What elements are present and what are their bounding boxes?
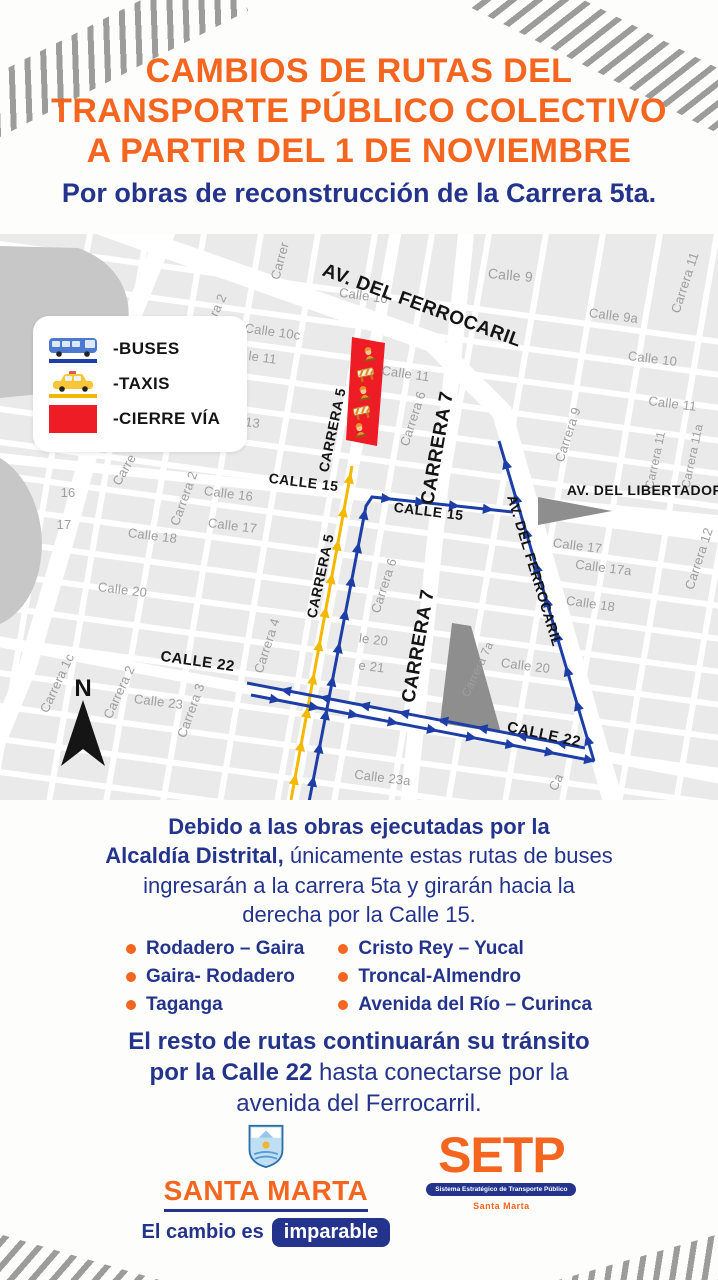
route-list-item: Avenida del Río – Curinca (338, 994, 592, 1016)
route-list-item: Taganga (126, 994, 304, 1016)
santa-marta-tagline: El cambio es imparable (142, 1218, 391, 1247)
route-list-item: Gaira- Rodadero (126, 966, 304, 988)
north-label: N (74, 675, 91, 702)
setp-wordmark: SETP (438, 1134, 565, 1177)
taxi-icon (47, 370, 99, 398)
route-list-item: Cristo Rey – Yucal (338, 938, 592, 960)
setp-full-name: Sistema Estratégico de Transporte Públic… (426, 1183, 576, 1196)
route-name: Taganga (146, 994, 223, 1016)
bullet-icon (338, 1000, 348, 1010)
bullet-icon (126, 944, 136, 954)
setp-city: Santa Marta (473, 1201, 530, 1211)
legend-label-buses: -BUSES (113, 339, 180, 359)
map-label: e 21 (358, 657, 386, 675)
santa-marta-logo: SANTA MARTA El cambio es imparable (142, 1124, 391, 1247)
legend-row-closure: -CIERRE VÍA (47, 405, 233, 433)
bullet-icon (338, 972, 348, 982)
page-title: CAMBIOS DE RUTAS DEL TRANSPORTE PÚBLICO … (0, 52, 718, 171)
routes-lists: Rodadero – Gaira Gaira- Rodadero Taganga… (0, 932, 718, 1022)
tagline-prefix: El cambio es (142, 1221, 264, 1244)
legend-label-taxis: -TAXIS (113, 374, 170, 394)
route-change-poster: CAMBIOS DE RUTAS DEL TRANSPORTE PÚBLICO … (0, 0, 718, 1280)
p1-line3: ingresarán a la carrera 5ta y girarán ha… (40, 871, 678, 900)
route-name: Avenida del Río – Curinca (358, 994, 592, 1016)
santa-marta-wordmark: SANTA MARTA (164, 1175, 369, 1212)
bullet-icon (126, 1000, 136, 1010)
route-list-item: Troncal-Almendro (338, 966, 592, 988)
p2-line2: por la Calle 22 hasta conectarse por la (40, 1057, 678, 1088)
route-name: Cristo Rey – Yucal (358, 938, 523, 960)
title-line-2: TRANSPORTE PÚBLICO COLECTIVO (0, 92, 718, 132)
title-line-3: A PARTIR DEL 1 DE NOVIEMBRE (0, 132, 718, 172)
legend-row-buses: -BUSES (47, 335, 233, 363)
route-name: Gaira- Rodadero (146, 966, 295, 988)
map-label: AV. DEL LIBERTADOR (567, 482, 718, 498)
p2-line1: El resto de rutas continuarán su tránsit… (40, 1026, 678, 1057)
routes-column-2: Cristo Rey – Yucal Troncal-Almendro Aven… (338, 932, 592, 1022)
paragraph-calle22: El resto de rutas continuarán su tránsit… (40, 1026, 678, 1120)
route-name: Troncal-Almendro (358, 966, 521, 988)
paragraph-works: Debido a las obras ejecutadas por la Alc… (40, 812, 678, 930)
map-section: Carrerra 2Calle 10Calle 9Carrera 11Calle… (0, 234, 718, 800)
setp-logo: SETP Sistema Estratégico de Transporte P… (426, 1134, 576, 1211)
footer-logos: SANTA MARTA El cambio es imparable SETP … (0, 1124, 718, 1247)
route-list-item: Rodadero – Gaira (126, 938, 304, 960)
map-legend: -BUSES -TAXIS (33, 316, 247, 452)
legend-label-closure: -CIERRE VÍA (113, 409, 220, 429)
p2-line3: avenida del Ferrocarril. (40, 1088, 678, 1119)
legend-row-taxis: -TAXIS (47, 370, 233, 398)
p1-line1: Debido a las obras ejecutadas por la (40, 812, 678, 841)
p1-line4: derecha por la Calle 15. (40, 900, 678, 929)
title-line-1: CAMBIOS DE RUTAS DEL (0, 52, 718, 92)
route-name: Rodadero – Gaira (146, 938, 304, 960)
santa-marta-crest-icon (247, 1124, 285, 1173)
tagline-highlight: imparable (272, 1218, 390, 1247)
bullet-icon (126, 972, 136, 982)
bullet-icon (338, 944, 348, 954)
map-label: 17 (57, 517, 72, 532)
p1-line2: Alcaldía Distrital, únicamente estas rut… (40, 841, 678, 870)
routes-column-1: Rodadero – Gaira Gaira- Rodadero Taganga (126, 932, 304, 1022)
page-subtitle: Por obras de reconstrucción de la Carrer… (0, 178, 718, 209)
closure-swatch-icon (47, 405, 99, 433)
bus-icon (47, 335, 99, 363)
map-label: 16 (61, 485, 76, 500)
